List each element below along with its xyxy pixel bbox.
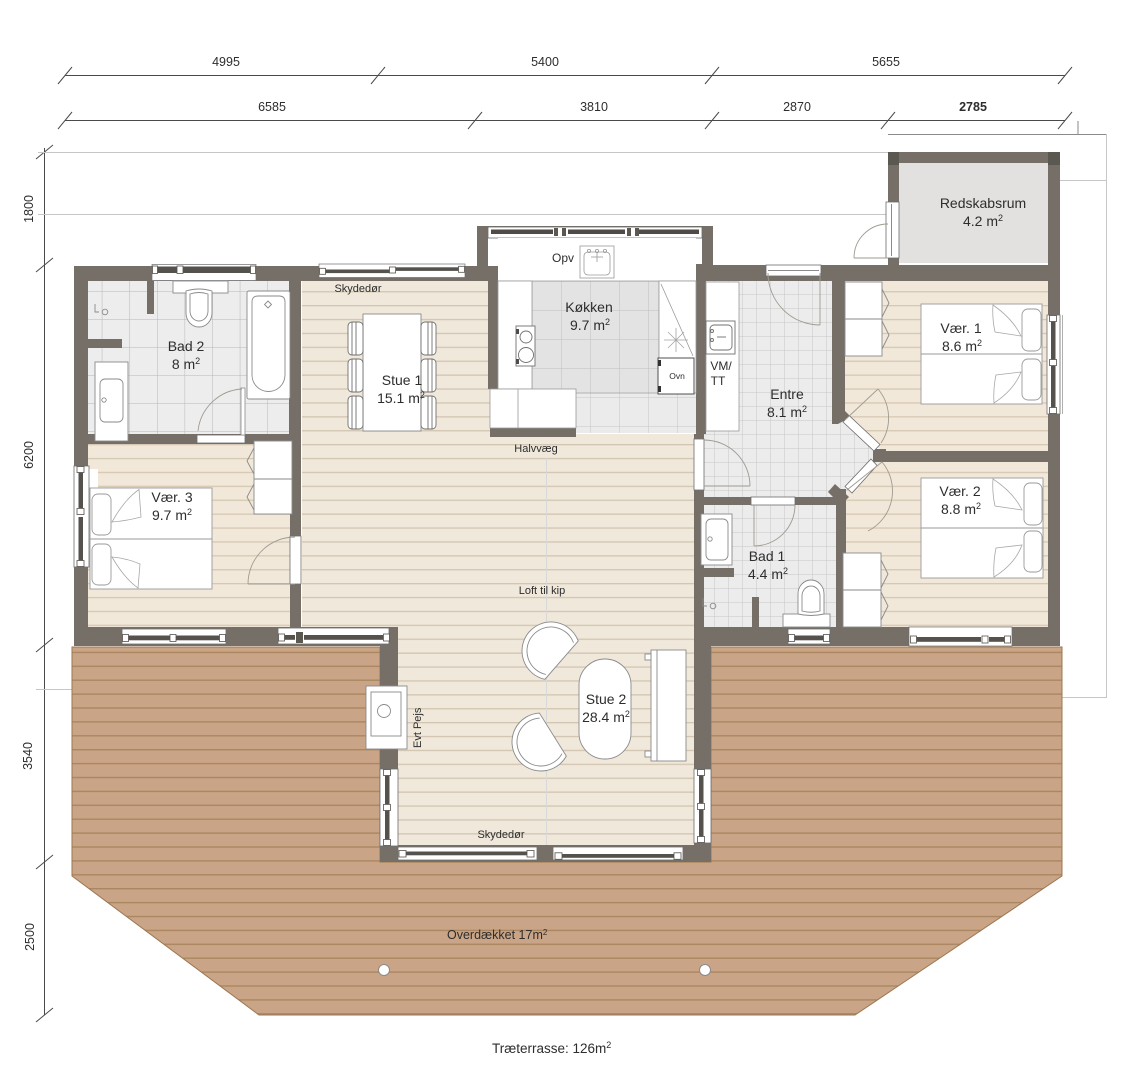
svg-text:Bad 1: Bad 1: [749, 548, 786, 564]
svg-text:9.7 m2: 9.7 m2: [570, 317, 610, 333]
svg-text:8.1 m2: 8.1 m2: [767, 404, 807, 420]
svg-text:Overdækket 17m2: Overdækket 17m2: [447, 928, 548, 942]
svg-text:Entre: Entre: [770, 386, 804, 402]
svg-text:Ovn: Ovn: [669, 371, 685, 381]
svg-text:Vær. 1: Vær. 1: [940, 320, 981, 336]
svg-text:Opv: Opv: [552, 251, 574, 265]
svg-text:4995: 4995: [212, 55, 240, 69]
svg-text:5400: 5400: [531, 55, 559, 69]
svg-text:6200: 6200: [22, 441, 36, 469]
svg-text:Køkken: Køkken: [565, 299, 612, 315]
svg-text:8.8 m2: 8.8 m2: [941, 501, 981, 517]
svg-text:3540: 3540: [21, 742, 35, 770]
svg-text:2785: 2785: [959, 100, 987, 114]
svg-text:Skydedør: Skydedør: [477, 829, 524, 841]
svg-text:15.1 m2: 15.1 m2: [377, 390, 425, 406]
svg-text:Vær. 3: Vær. 3: [151, 489, 192, 505]
svg-text:Vær. 2: Vær. 2: [939, 483, 980, 499]
svg-text:TT: TT: [711, 374, 726, 388]
svg-text:9.7 m2: 9.7 m2: [152, 507, 192, 523]
svg-text:Træterrasse: 126m2: Træterrasse: 126m2: [492, 1040, 611, 1056]
svg-text:Redskabsrum: Redskabsrum: [940, 195, 1026, 211]
svg-text:Stue 1: Stue 1: [382, 372, 423, 388]
svg-text:Bad 2: Bad 2: [168, 338, 205, 354]
svg-text:4.2 m2: 4.2 m2: [963, 213, 1003, 229]
svg-text:1800: 1800: [22, 195, 36, 223]
svg-text:Skydedør: Skydedør: [334, 283, 381, 295]
svg-text:VM/: VM/: [710, 359, 732, 373]
svg-text:2500: 2500: [23, 923, 37, 951]
svg-text:Stue 2: Stue 2: [586, 691, 627, 707]
svg-text:5655: 5655: [872, 55, 900, 69]
svg-text:2870: 2870: [783, 100, 811, 114]
svg-text:28.4 m2: 28.4 m2: [582, 709, 630, 725]
svg-text:8.6 m2: 8.6 m2: [942, 338, 982, 354]
svg-text:6585: 6585: [258, 100, 286, 114]
svg-text:Halvvæg: Halvvæg: [514, 443, 557, 455]
svg-text:3810: 3810: [580, 100, 608, 114]
svg-text:4.4 m2: 4.4 m2: [748, 566, 788, 582]
svg-text:Evt Pejs: Evt Pejs: [412, 707, 424, 748]
svg-text:Loft til kip: Loft til kip: [519, 585, 565, 597]
